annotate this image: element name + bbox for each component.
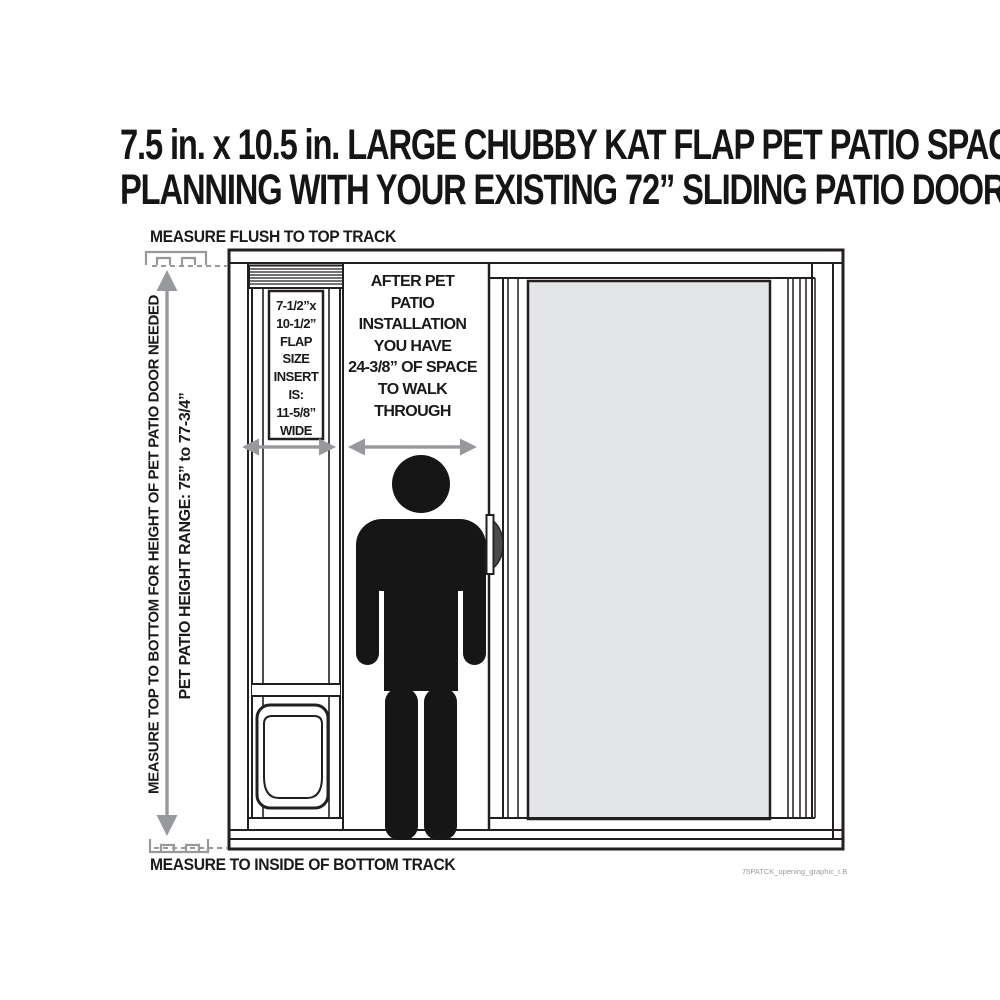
flap-size-line: IS: <box>268 386 324 404</box>
graphic-filename-watermark: 75PATCK_opening_graphic_r.B <box>742 867 847 876</box>
walkthrough-line: YOU HAVE <box>344 336 481 358</box>
flap-size-line: SIZE <box>268 350 324 368</box>
flap-size-line: WIDE <box>268 422 324 440</box>
height-needed-label: MEASURE TOP TO BOTTOM FOR HEIGHT OF PET … <box>146 285 163 805</box>
flap-size-line: 11-5/8” <box>268 404 324 422</box>
walkthrough-text: AFTER PET PATIO INSTALLATION YOU HAVE 24… <box>344 271 481 422</box>
walkthrough-line: AFTER PET <box>344 271 481 293</box>
flap-size-line: FLAP <box>268 333 324 351</box>
walkthrough-line: PATIO <box>344 293 481 315</box>
bottom-track-profile-icon <box>150 839 228 852</box>
flap-size-line: 10-1/2” <box>268 315 324 333</box>
measure-top-track-label: MEASURE FLUSH TO TOP TRACK <box>150 227 396 247</box>
walkthrough-line: TO WALK <box>344 379 481 401</box>
panel-crossbar <box>252 684 340 696</box>
pet-patio-planning-diagram: 7.5 in. x 10.5 in. LARGE CHUBBY KAT FLAP… <box>0 0 1000 1000</box>
title-line-1: 7.5 in. x 10.5 in. LARGE CHUBBY KAT FLAP… <box>120 123 880 168</box>
door-glass <box>528 281 770 819</box>
sliding-door <box>489 263 815 830</box>
measure-bottom-track-label: MEASURE TO INSIDE OF BOTTOM TRACK <box>150 855 455 875</box>
page-title: 7.5 in. x 10.5 in. LARGE CHUBBY KAT FLAP… <box>0 123 1000 213</box>
top-track-stripes <box>249 266 343 289</box>
walkthrough-line: THROUGH <box>344 401 481 423</box>
top-track-profile-icon <box>146 252 227 266</box>
pet-flap <box>257 705 328 808</box>
height-range-label: PET PATIO HEIGHT RANGE: 75” to 77-3/4” <box>177 336 195 756</box>
flap-size-text: 7-1/2”x 10-1/2” FLAP SIZE INSERT IS: 11-… <box>268 297 324 439</box>
walkthrough-line: INSTALLATION <box>344 314 481 336</box>
walkthrough-line: 24-3/8” OF SPACE <box>344 357 481 379</box>
flap-size-line: INSERT <box>268 368 324 386</box>
title-line-2: PLANNING WITH YOUR EXISTING 72” SLIDING … <box>120 168 880 213</box>
flap-size-line: 7-1/2”x <box>268 297 324 315</box>
